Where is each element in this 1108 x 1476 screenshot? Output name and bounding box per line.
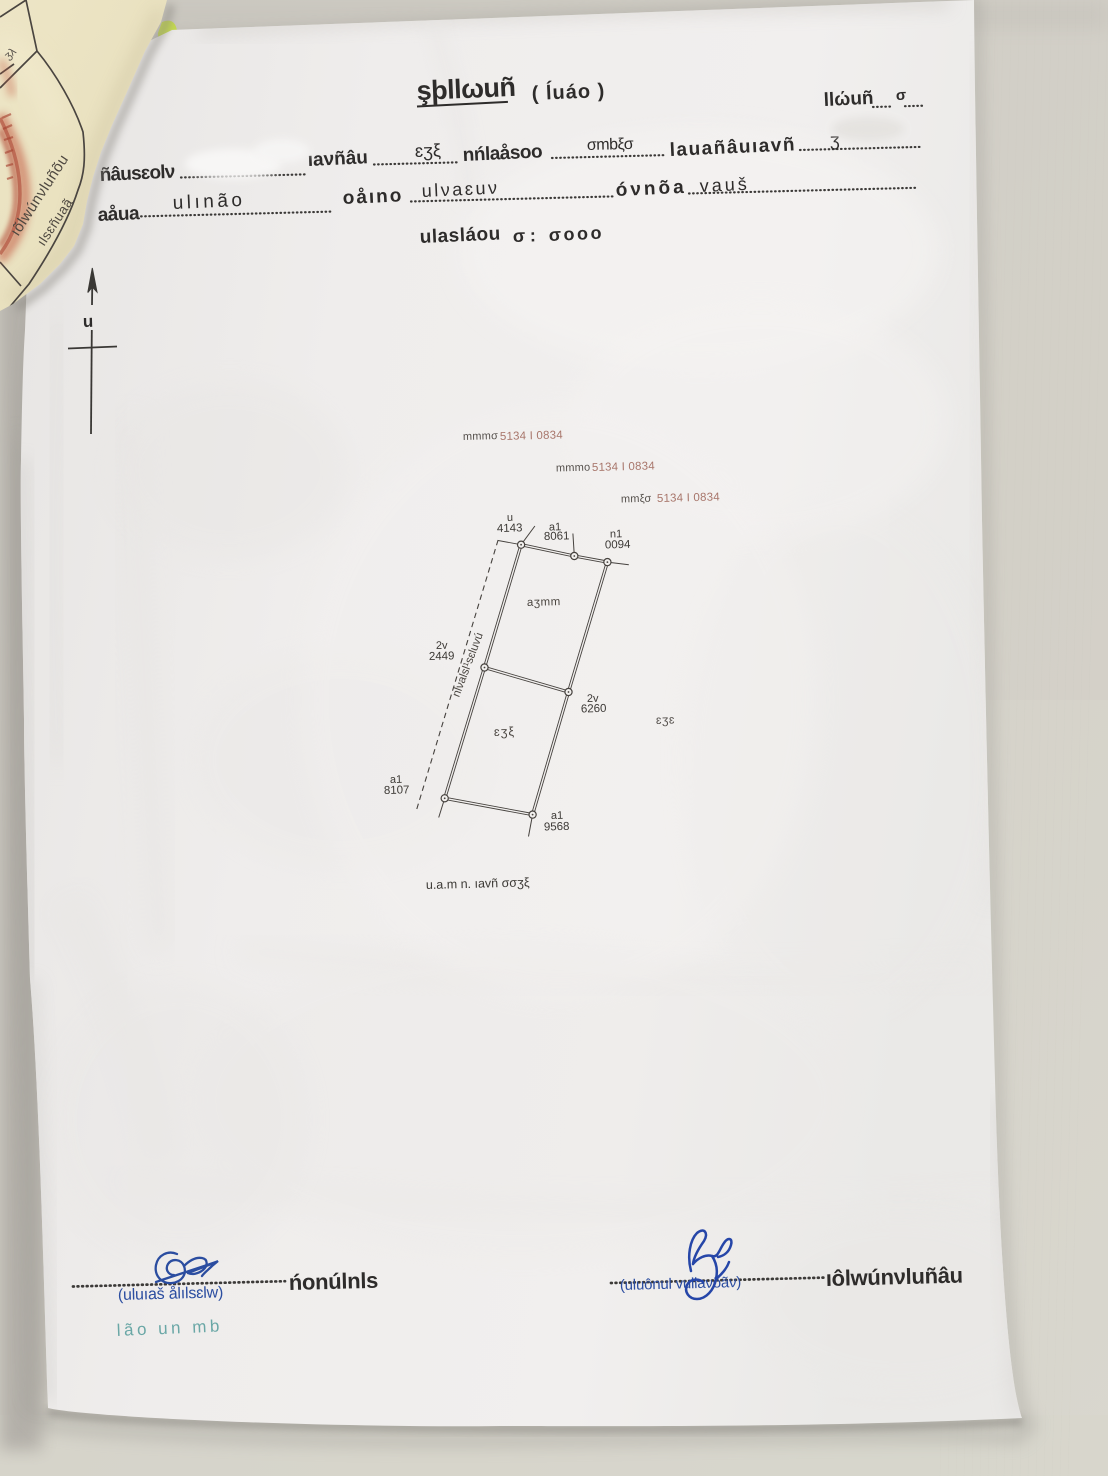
svg-text:5134 I 0834: 5134 I 0834: [657, 491, 721, 505]
svg-text:2449: 2449: [429, 650, 455, 663]
svg-text:ñâusɛolν: ñâusɛolν: [99, 162, 175, 186]
svg-text:şþllωuñ: şþllωuñ: [416, 72, 516, 106]
svg-text:mmξσ: mmξσ: [621, 493, 652, 506]
svg-text:oåıno: oåıno: [342, 185, 404, 209]
svg-text:mmmo: mmmo: [556, 462, 591, 475]
svg-text:6260: 6260: [581, 703, 607, 716]
svg-text:aåua: aåua: [97, 203, 140, 226]
svg-text:vauš: vauš: [699, 174, 750, 196]
svg-text::: :: [530, 225, 537, 245]
svg-text:nńlaåsoo: nńlaåsoo: [462, 141, 542, 166]
svg-text:9568: 9568: [544, 821, 570, 834]
svg-text:llώuñ: llώuñ: [823, 88, 874, 111]
svg-text:5134 I 0834: 5134 I 0834: [592, 460, 656, 474]
svg-text:ɛʒξ: ɛʒξ: [415, 140, 442, 161]
svg-text:8107: 8107: [384, 784, 410, 797]
svg-text:mmmσ: mmmσ: [463, 430, 498, 443]
svg-text:( ĺuáo ): ( ĺuáo ): [531, 78, 605, 105]
svg-text:u: u: [83, 312, 94, 331]
svg-text:ńonúlnls: ńonúlnls: [288, 1268, 378, 1295]
svg-text:σ: σ: [896, 87, 907, 104]
svg-text:(uluıaš ålılsɛlw): (uluıaš ålılsɛlw): [118, 1283, 224, 1304]
svg-text:5134 I 0834: 5134 I 0834: [500, 429, 564, 443]
svg-text:ɛʒɛ: ɛʒɛ: [656, 713, 675, 727]
svg-text:ɛʒξ: ɛʒξ: [494, 724, 515, 739]
svg-text:aʒmm: aʒmm: [527, 596, 561, 609]
svg-text:ulνaɛuν: ulνaɛuν: [421, 177, 500, 201]
svg-text:0094: 0094: [605, 539, 631, 552]
svg-text:σ: σ: [513, 226, 526, 246]
svg-text:8061: 8061: [544, 530, 570, 543]
svg-text:σooo: σooo: [548, 223, 604, 245]
svg-text:u.a.m n. ıavñ σσʒξ: u.a.m n. ıavñ σσʒξ: [426, 875, 530, 892]
svg-text:(uluônul vullaνõãν): (uluônul vullaνõãν): [620, 1274, 742, 1294]
svg-text:ıaνñâu: ıaνñâu: [307, 147, 368, 171]
svg-text:4143: 4143: [497, 522, 523, 535]
svg-text:ıôlwúnνluñâu: ıôlwúnνluñâu: [825, 1263, 963, 1291]
svg-text:óνnõa: óνnõa: [615, 177, 687, 201]
svg-text:ulasláou: ulasláou: [419, 223, 501, 248]
svg-text:σmbξσ: σmbξσ: [587, 136, 634, 154]
svg-text:ulınão: ulınão: [172, 190, 246, 214]
